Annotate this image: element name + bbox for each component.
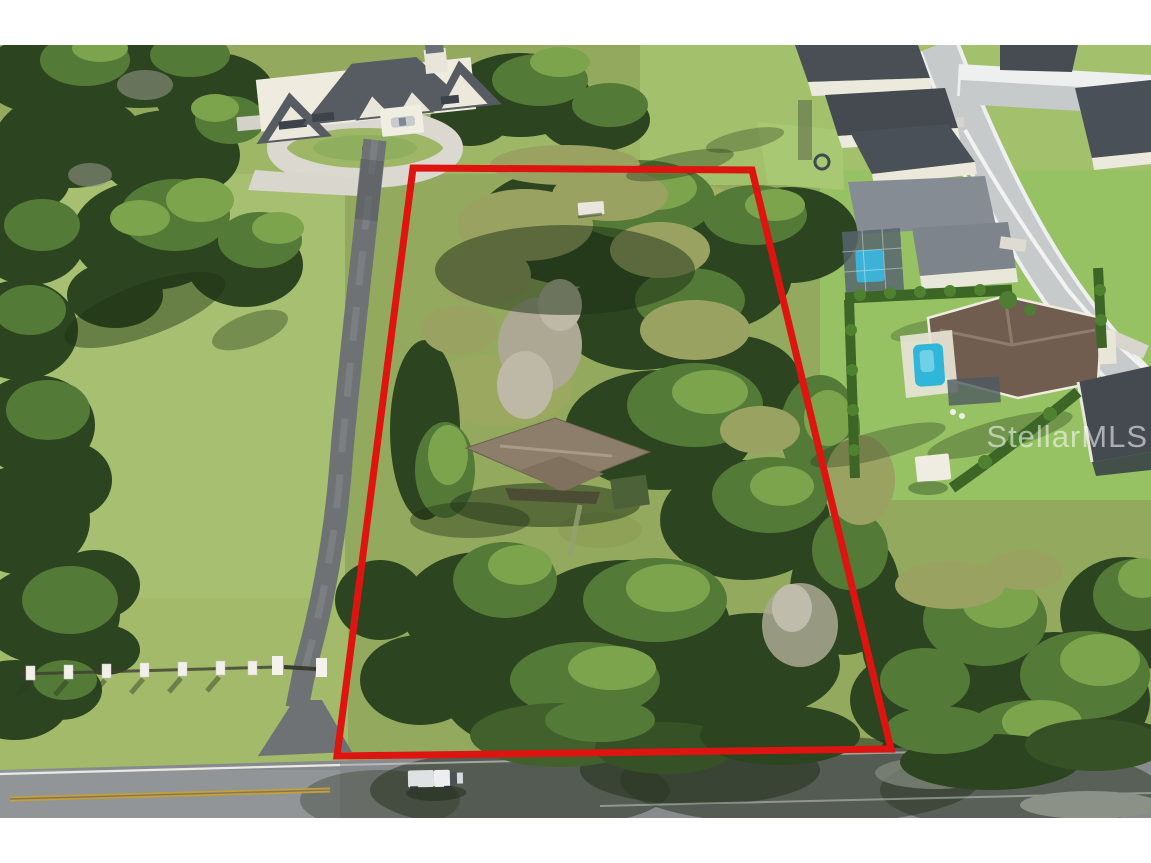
white-trailer [578,201,605,217]
gate-pillar [316,658,327,677]
palm-tree [999,291,1017,309]
screened-pool [855,249,885,282]
aerial-photo: StellarMLS [0,0,1151,863]
gate-pillar [272,656,283,675]
garden-shed [610,475,650,510]
watermark: StellarMLS [986,419,1148,454]
gate [284,667,316,669]
